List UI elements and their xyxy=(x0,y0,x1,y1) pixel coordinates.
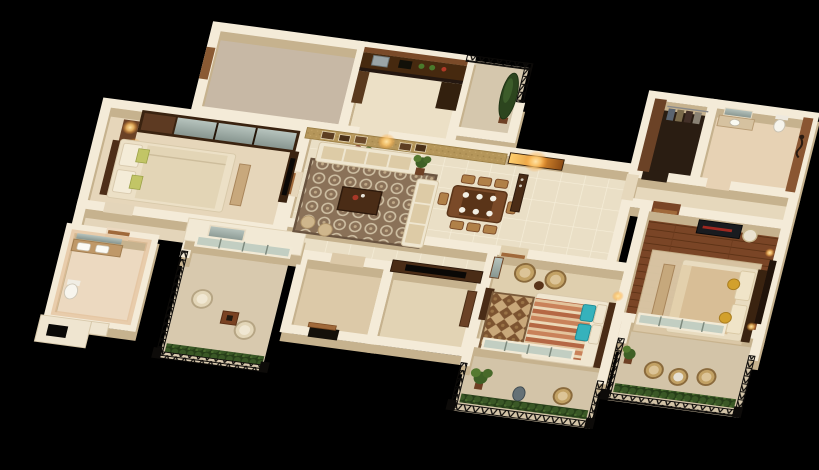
dining-chair xyxy=(449,220,464,230)
dining-chair xyxy=(494,179,509,189)
dining-chair xyxy=(466,223,481,233)
kitchen-hob xyxy=(398,60,413,70)
coffee-table xyxy=(337,187,382,215)
picture-frame xyxy=(338,135,350,143)
service-shaft-step xyxy=(89,321,110,336)
picture-frame xyxy=(354,136,367,145)
isometric-floor-plan: 3D isometric floor plan render of a 3-be… xyxy=(0,0,819,470)
wash-basin xyxy=(76,242,90,251)
kitchen-sink xyxy=(371,55,389,67)
dining-chair xyxy=(461,175,476,185)
wash-basin xyxy=(95,245,109,254)
dining-chair xyxy=(478,177,493,187)
picture-frame xyxy=(321,131,335,140)
picture-frame xyxy=(414,144,426,152)
dining-chair xyxy=(483,225,498,235)
picture-frame xyxy=(399,143,412,152)
floor-plan-render: 3D isometric floor plan render of a 3-be… xyxy=(0,0,819,470)
plant-pot xyxy=(415,167,426,175)
